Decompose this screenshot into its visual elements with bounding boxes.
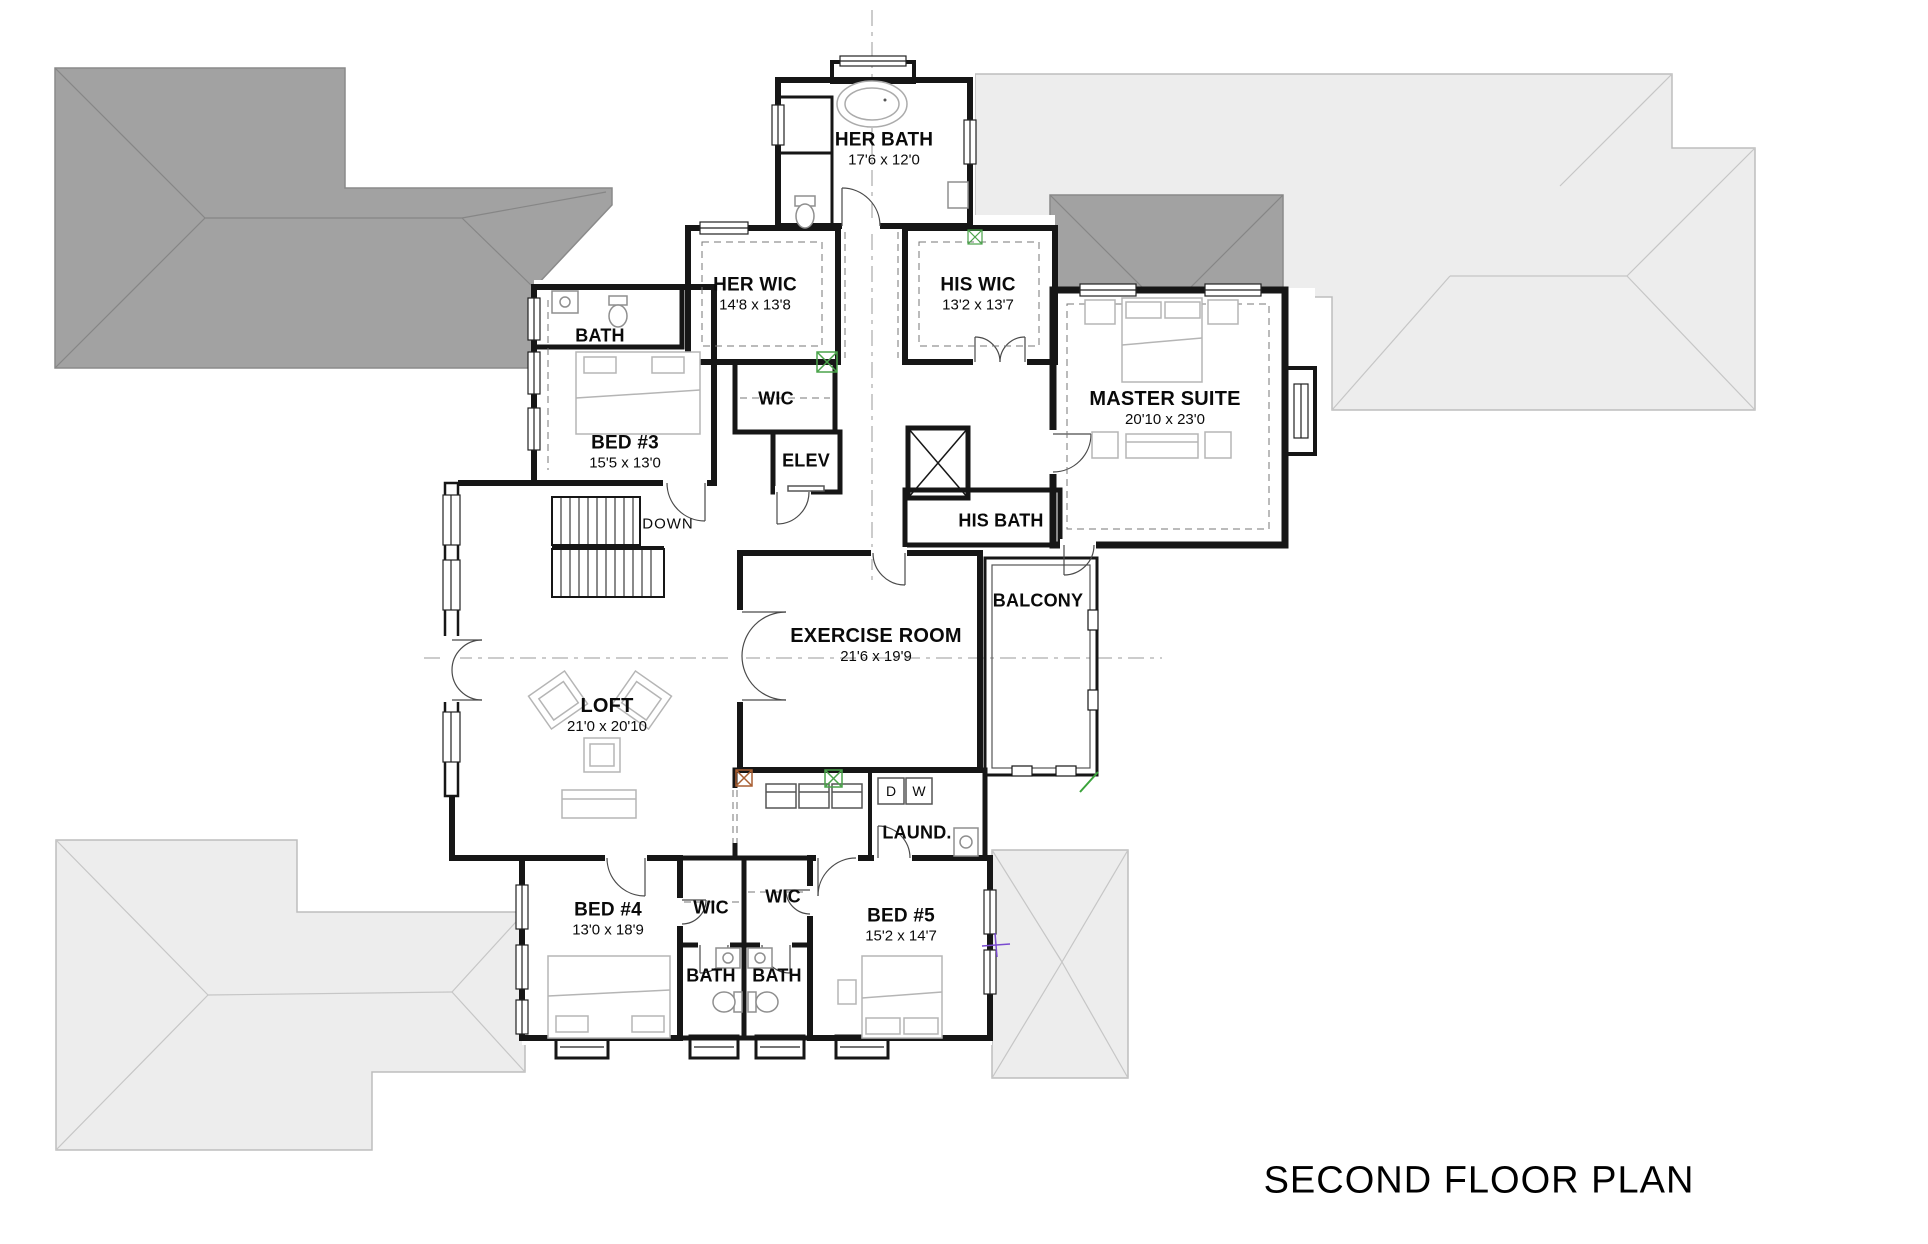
room-label-bath-bed4: BATH xyxy=(686,966,735,987)
washer-label: W xyxy=(912,783,925,799)
room-label-bath3: BATH xyxy=(575,326,624,347)
loft-sofa-icon xyxy=(562,790,636,818)
room-label-bed4: BED #4 13'0 x 18'9 xyxy=(572,899,644,938)
bed3-bed-icon xyxy=(576,352,700,434)
bed4-bed-icon xyxy=(548,956,670,1038)
room-label-bath-bed5: BATH xyxy=(752,966,801,987)
laundry-sink xyxy=(954,828,978,856)
room-label-his-bath: HIS BATH xyxy=(958,511,1043,532)
drawing-title: SECOND FLOOR PLAN xyxy=(1264,1160,1695,1203)
room-label-her-wic: HER WIC 14'8 x 13'8 xyxy=(713,274,797,313)
toilet-icon-bath3 xyxy=(609,296,627,327)
master-sofa-icon xyxy=(1092,432,1231,458)
dryer-label: D xyxy=(886,783,896,799)
roof-bottom-right xyxy=(992,850,1128,1078)
room-label-bed3: BED #3 15'5 x 13'0 xyxy=(589,432,661,471)
room-label-her-bath: HER BATH 17'6 x 12'0 xyxy=(835,129,933,168)
room-label-his-wic: HIS WIC 13'2 x 13'7 xyxy=(940,274,1015,313)
stairs-down-label: DOWN xyxy=(642,515,694,532)
floor-plan-page: HER BATH 17'6 x 12'0 HER WIC 14'8 x 13'8… xyxy=(0,0,1928,1244)
sink-bath3 xyxy=(552,291,578,313)
bathtub-icon xyxy=(837,81,907,127)
elevator-door xyxy=(788,486,824,491)
room-label-loft: LOFT 21'0 x 20'10 xyxy=(567,695,647,735)
room-label-wic-bed4: WIC xyxy=(693,898,729,919)
room-label-balcony: BALCONY xyxy=(993,591,1083,612)
sink-her-bath xyxy=(948,182,968,208)
room-label-elev: ELEV xyxy=(782,451,830,472)
floor-plan-drawing xyxy=(0,0,1928,1244)
room-label-wic-bed5: WIC xyxy=(765,887,801,908)
room-label-master-suite: MASTER SUITE 20'10 x 23'0 xyxy=(1089,388,1240,428)
room-label-laundry: LAUND. xyxy=(882,823,951,844)
room-label-wic-center: WIC xyxy=(758,389,794,410)
room-label-bed5: BED #5 15'2 x 14'7 xyxy=(865,905,937,944)
loft-table-icon xyxy=(584,738,620,772)
linen-cabinets xyxy=(766,784,862,808)
toilet-icon-water-closet xyxy=(795,196,815,228)
roof-master-dark xyxy=(1050,195,1283,290)
roof-bottom-left xyxy=(56,840,525,1150)
room-label-exercise-room: EXERCISE ROOM 21'6 x 19'9 xyxy=(790,625,962,665)
